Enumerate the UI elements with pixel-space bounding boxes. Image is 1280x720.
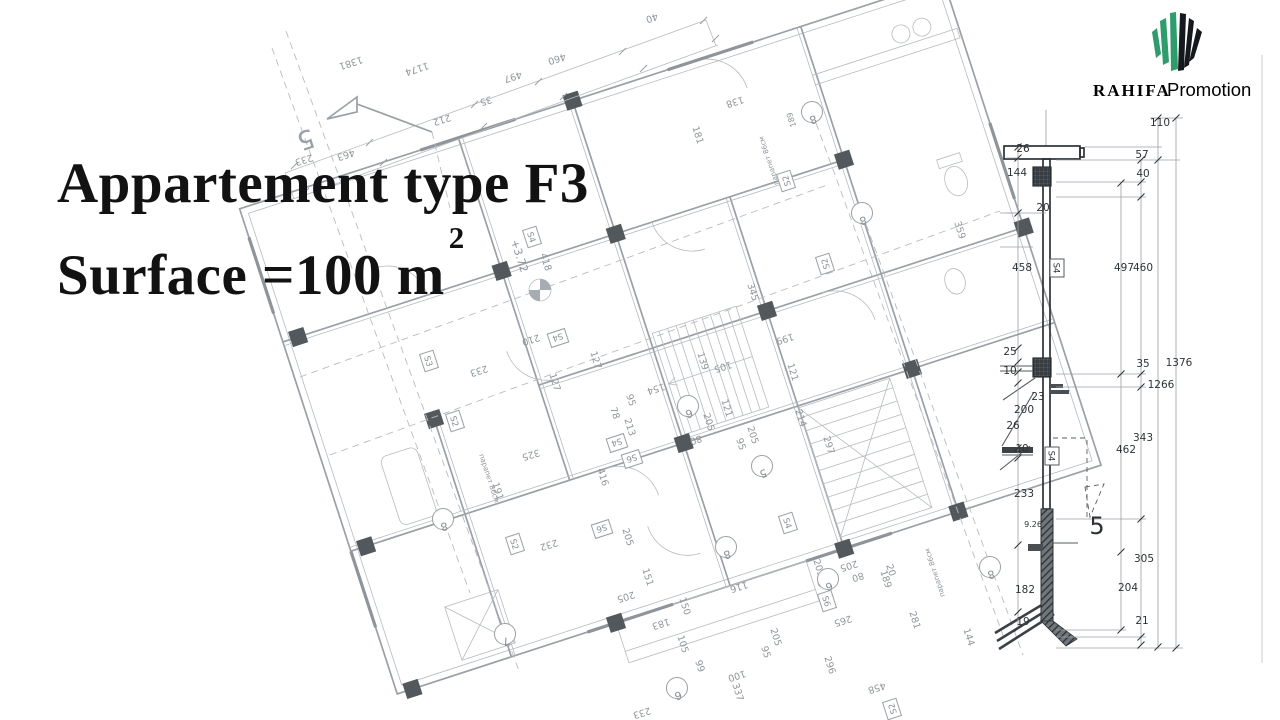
tagt stagt-label: S4 <box>1046 451 1056 462</box>
pdim-label: 1174 <box>404 59 430 77</box>
pdim-label: 151 <box>639 567 655 588</box>
pdim-label: 205 <box>700 412 716 433</box>
pdim-label: 212 <box>431 111 452 127</box>
pdim-label: 183 <box>650 615 671 631</box>
grid-bubble: 6 <box>678 396 699 421</box>
caption-line1: Appartement type F3 <box>57 144 589 224</box>
wall-type-tag: S4 <box>1050 259 1064 277</box>
columns <box>245 0 1111 699</box>
company-logo: RAHIFA Promotion <box>1085 4 1275 104</box>
pdim-label: 297 <box>820 435 836 456</box>
pdim-label: 210 <box>520 331 541 347</box>
sdim-label: 26 <box>1006 420 1020 432</box>
wall-type-tag: S2 <box>816 253 835 274</box>
wall-type-tag: S2 <box>506 533 525 554</box>
pdim-label: 232 <box>538 536 559 552</box>
sdim-label: 110 <box>1150 117 1170 129</box>
sdim-label: 497 <box>1114 262 1134 274</box>
sdim-label: 460 <box>1133 262 1153 274</box>
pdim-label: 416 <box>594 467 610 488</box>
sdim-label: 305 <box>1134 553 1154 565</box>
pdim-label: 139 <box>694 351 710 372</box>
grid-bubble: 6 <box>667 678 688 703</box>
grid-bubble: 8 <box>980 557 1001 582</box>
pdim-label: 181 <box>689 125 705 146</box>
sdim-label: 26 <box>1016 143 1030 155</box>
column-section <box>1033 167 1051 186</box>
windows <box>240 0 1101 694</box>
grid-bubble: 8 <box>802 102 823 127</box>
sdim-label: 182 <box>1015 584 1035 596</box>
sdim-label: 25 <box>1003 346 1016 358</box>
logo-brand-text: RAHIFA <box>1093 81 1171 100</box>
blueprint-canvas: 1381117446049735212401381812334635233210… <box>0 0 1280 720</box>
logo-fan-icon <box>1152 12 1202 71</box>
sdim-label: 343 <box>1133 432 1153 444</box>
pdim-label: 337 <box>729 682 745 703</box>
pdim-label: 296 <box>821 655 837 676</box>
pdim-label: 205 <box>838 557 859 573</box>
pdim-label: 233 <box>631 704 652 720</box>
pdim-label: 40 <box>644 10 659 24</box>
pdim-label: 189 <box>785 111 798 128</box>
superscript-2: 2 <box>449 220 465 255</box>
wall-type-tag: S2 <box>446 410 465 431</box>
pdim-label: 121 <box>718 398 734 419</box>
sdim-label: 40 <box>1136 168 1149 180</box>
pdim-label: 325 <box>520 446 541 462</box>
sdim-label: 10 <box>1015 443 1028 455</box>
pdim-label: 265 <box>832 612 853 628</box>
sdim-label: 233 <box>1014 488 1034 500</box>
pdim-label: 95 <box>623 393 637 408</box>
pdim-label: 205 <box>744 425 760 446</box>
pdim-label: 144 <box>960 627 976 648</box>
pdim-label: 105 <box>674 634 690 655</box>
grid-bubble: 8 <box>852 203 873 228</box>
pdim-label: парапет 86см <box>477 453 500 504</box>
pdim-label: 80 <box>850 569 865 583</box>
sdim-label: 462 <box>1116 444 1136 456</box>
sdim-label: 19 <box>1016 616 1029 628</box>
pdim-label: 199 <box>774 330 795 346</box>
sdim-label: 20 <box>1036 202 1049 214</box>
logo-suffix-text: Promotion <box>1167 79 1251 100</box>
pdim-label: 154 <box>645 380 666 396</box>
pdim-label: 458 <box>866 679 887 695</box>
pdim-label: 121 <box>784 362 800 383</box>
pdim-label: 127 <box>546 372 562 393</box>
sdim-label: 1266 <box>1148 379 1175 391</box>
grid-bubble: 8 <box>716 537 737 562</box>
pdim-label: 205 <box>767 627 783 648</box>
plan-dim-labels: 1381117446049735212401381812334635233210… <box>293 10 976 720</box>
caption: Appartement type F3 Surface =100 m2 <box>57 144 589 316</box>
wall-type-tag: S6 <box>591 520 612 539</box>
pdim-label: 116 <box>728 578 749 594</box>
sdim-label: 57 <box>1135 149 1148 161</box>
wall-type-tag: S2 <box>883 698 902 719</box>
pdim-label: парапет 86см <box>757 135 780 186</box>
sdim-label: 458 <box>1012 262 1032 274</box>
pdim-label: 1381 <box>338 53 364 71</box>
pdim-label: 99 <box>692 659 706 674</box>
column-section <box>1033 358 1051 377</box>
pdim-label: 95 <box>733 437 747 452</box>
sdim-label: 1376 <box>1166 357 1193 369</box>
pdim-label: 233 <box>468 362 489 378</box>
sdim-label: 9.26 <box>1024 520 1042 529</box>
tagt stagt-label: S4 <box>1051 263 1061 274</box>
pdim-label: 214 <box>792 408 808 429</box>
sdim-label: 23 <box>1031 391 1044 403</box>
section-dim-labels: 261442045825102320026102339.261821949746… <box>1003 117 1192 628</box>
wall-type-tag: S6 <box>621 450 642 469</box>
wall-type-tag: S6 <box>818 590 837 611</box>
wall-type-tag: S4 <box>606 434 627 453</box>
pdim-label: 205 <box>615 588 636 604</box>
grid-bubble: 7 <box>495 624 516 649</box>
wall-type-tag: S3 <box>420 350 439 371</box>
wall-type-tag: S4 <box>1045 447 1059 465</box>
wall-type-tag: S4 <box>779 512 798 533</box>
grid-bubble: 6 <box>818 569 839 594</box>
grid-bubble: 8 <box>433 509 454 534</box>
pdim-label: 460 <box>546 50 567 66</box>
sdim-label: 5 <box>1089 512 1104 540</box>
pdim-label: 127 <box>587 350 603 371</box>
pdim-label: 35 <box>478 93 493 107</box>
pdim-label: 138 <box>724 93 745 109</box>
pdim-label: 281 <box>906 610 922 631</box>
pdim-label: 359 <box>951 220 967 241</box>
pdim-label: 95 <box>758 645 772 660</box>
grid-bubble: 5 <box>752 456 773 481</box>
sdim-label: 204 <box>1118 582 1138 594</box>
wall-type-tag: S2 <box>777 170 796 191</box>
sdim-label: 10 <box>1003 365 1016 377</box>
pdim-label: 78 <box>607 406 621 421</box>
wall-section <box>1000 55 1262 663</box>
pdim-label: 100 <box>726 667 747 683</box>
wall-type-tag: S4 <box>547 329 568 348</box>
caption-line2: Surface =100 m2 <box>57 224 589 316</box>
logo-graphic: RAHIFA Promotion <box>1085 4 1275 104</box>
sdim-label: 200 <box>1014 404 1034 416</box>
pdim-label: парапет 86см <box>923 547 946 598</box>
sdim-label: 144 <box>1007 167 1027 179</box>
sdim-label: 21 <box>1135 615 1148 627</box>
pdim-label: 205 <box>619 527 635 548</box>
pdim-label: 497 <box>502 68 523 84</box>
sdim-label: 35 <box>1136 358 1149 370</box>
